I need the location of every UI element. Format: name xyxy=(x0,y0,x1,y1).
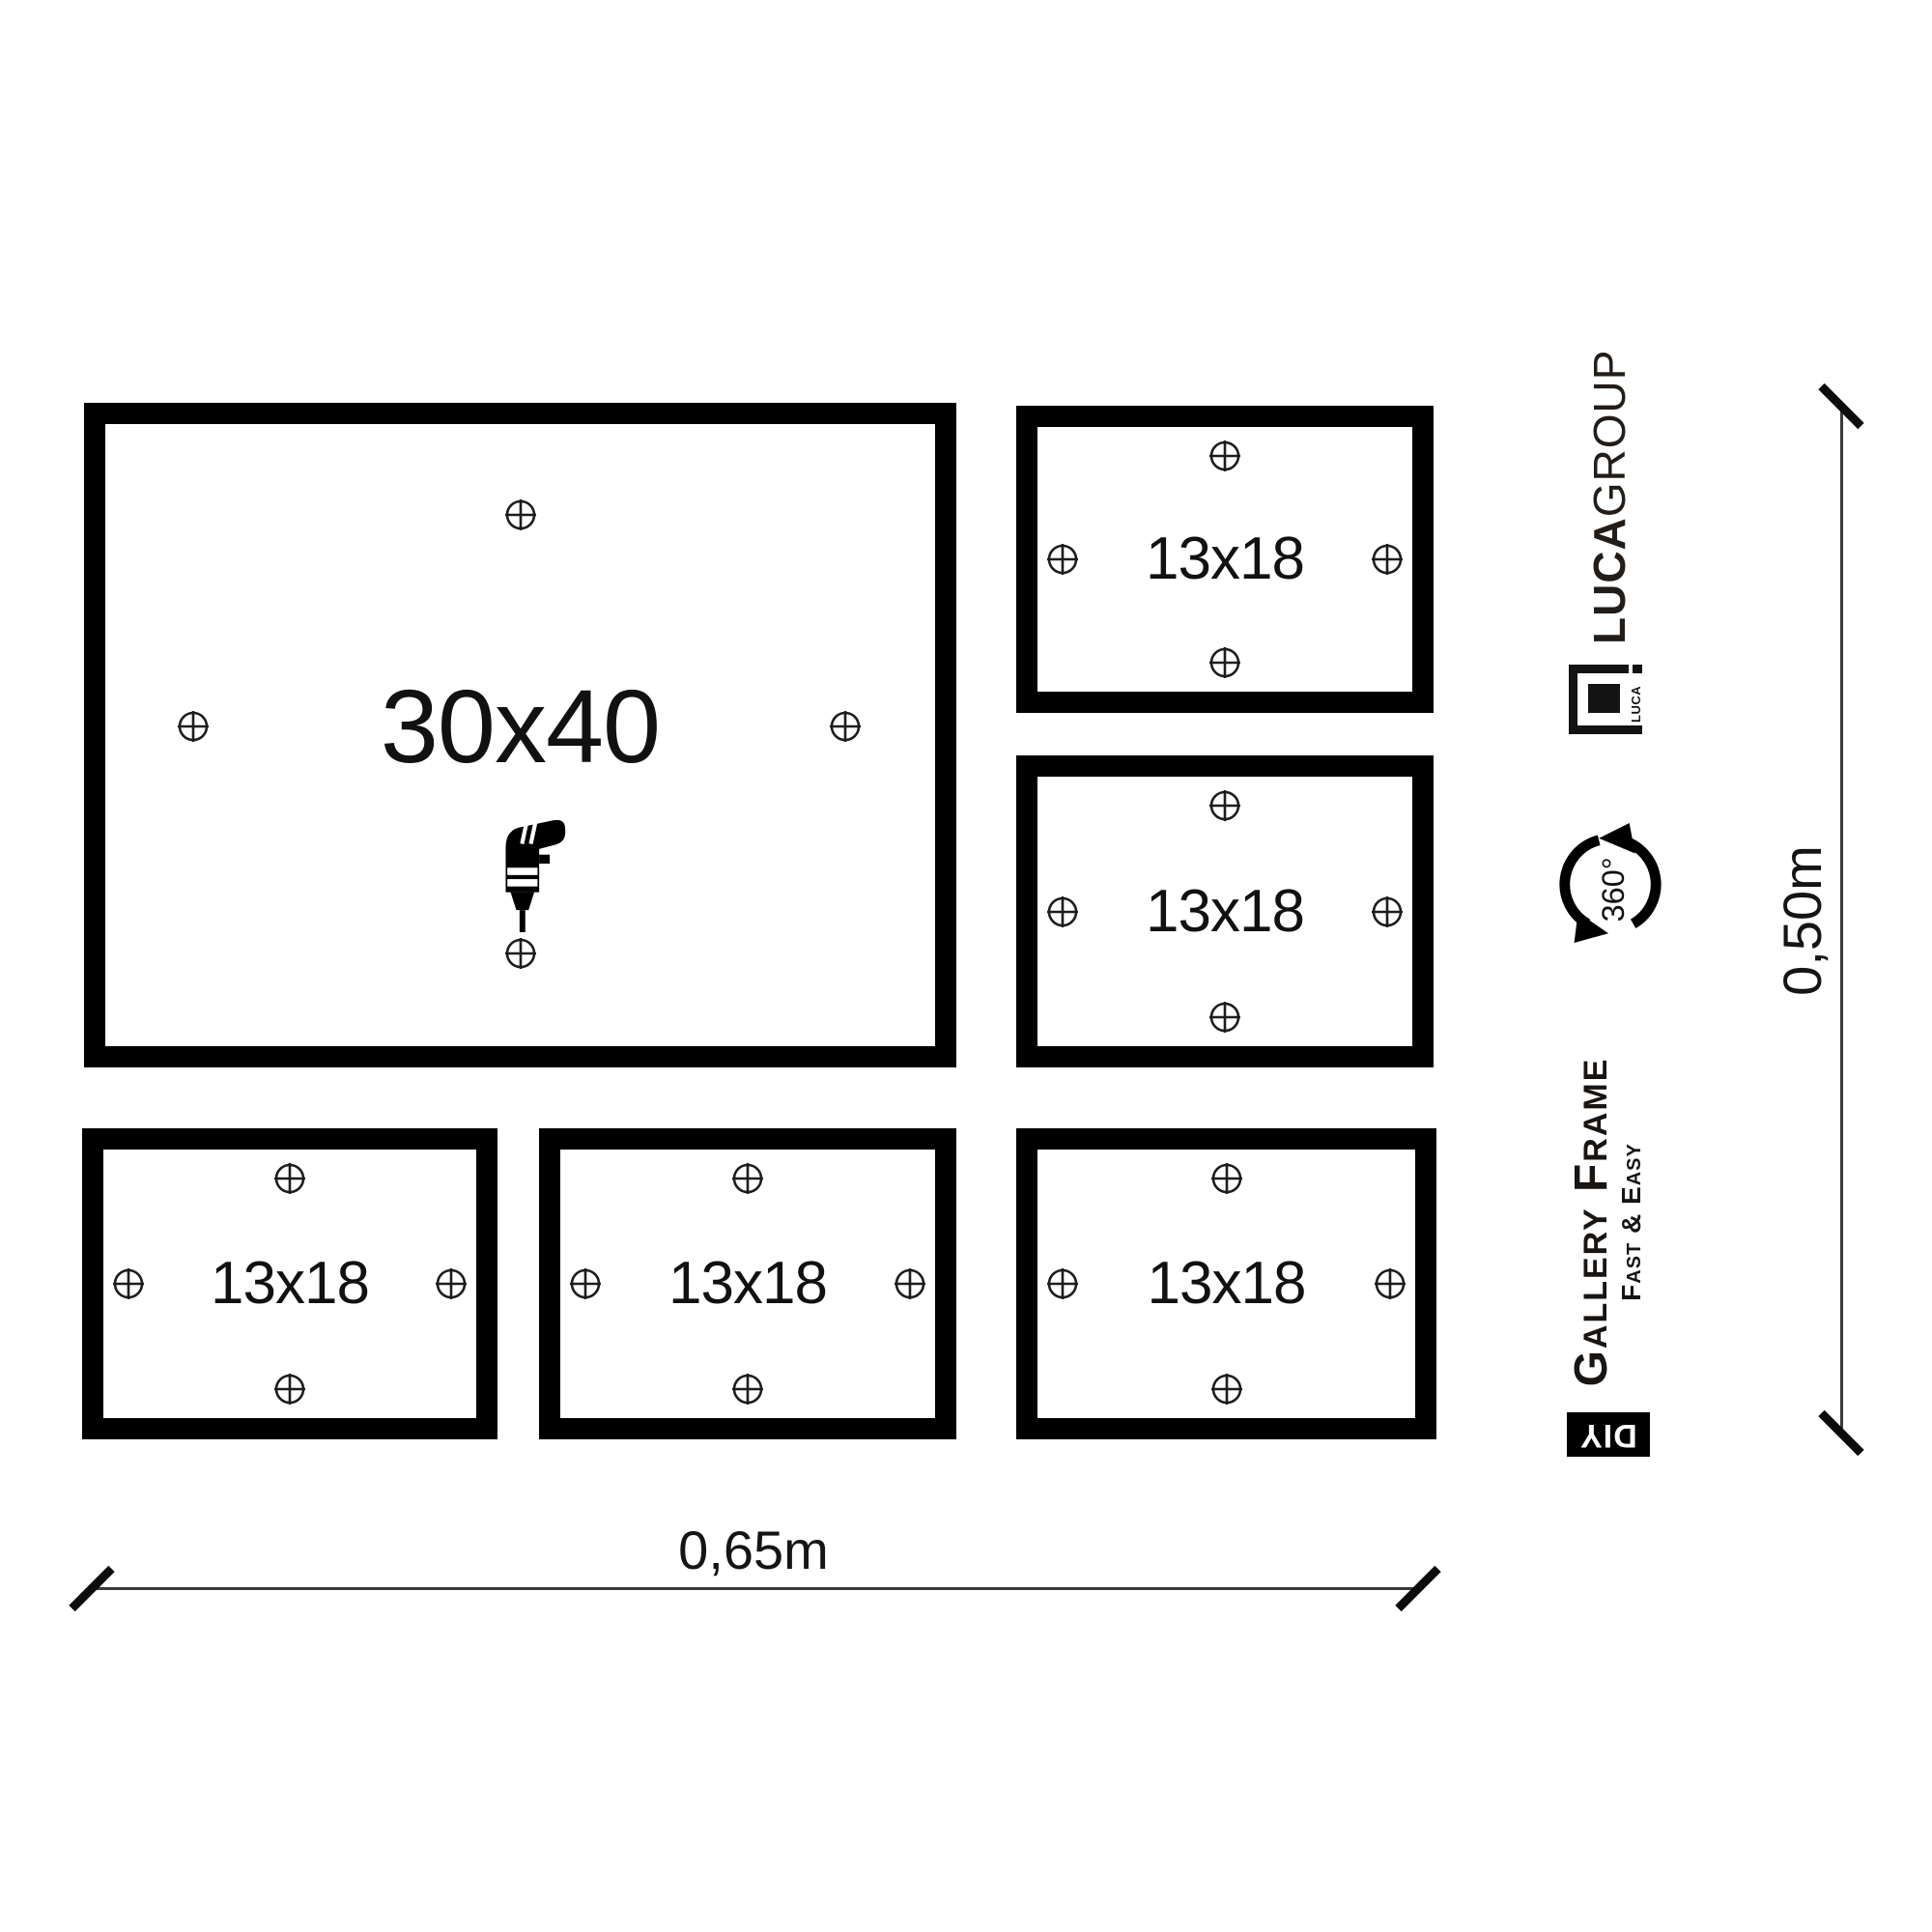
crosshair-mark-icon xyxy=(272,1161,307,1196)
frame-size-label: 30x40 xyxy=(105,674,935,779)
crosshair-mark-icon xyxy=(730,1372,765,1406)
brand-name-light: GROUP xyxy=(1584,350,1634,518)
vertical-dimension-line xyxy=(1840,406,1843,1433)
frame-13x18-bottom-center: 13x18 xyxy=(539,1128,956,1439)
crosshair-mark-icon xyxy=(1045,895,1080,929)
mount-mark-top xyxy=(730,1161,765,1196)
frame-size-label: 13x18 xyxy=(103,1254,476,1314)
frame-size-label: 13x18 xyxy=(1037,529,1412,589)
mount-mark-right xyxy=(434,1266,469,1301)
mount-mark-left xyxy=(1045,1266,1080,1301)
crosshair-mark-icon xyxy=(1370,895,1405,929)
mount-mark-left xyxy=(1045,542,1080,577)
logo-text: LUCA xyxy=(1629,686,1643,723)
product-name: Gallery Frame xyxy=(1568,1029,1616,1415)
frame-13x18-bottom-right: 13x18 xyxy=(1016,1128,1436,1439)
frame-hanging-template-sheet: 30x40 13x18 13x18 13x18 13x18 13x18 0,65… xyxy=(0,0,1932,1932)
crosshair-mark-icon xyxy=(503,497,538,532)
crosshair-mark-icon xyxy=(1045,542,1080,577)
mount-mark-bottom xyxy=(1207,1000,1242,1035)
rotation-360-icon: 360° xyxy=(1549,823,1671,945)
frame-13x18-middle-right: 13x18 xyxy=(1016,755,1434,1067)
crosshair-mark-icon xyxy=(730,1161,765,1196)
mount-mark-right xyxy=(828,709,863,744)
frame-13x18-top-right: 13x18 xyxy=(1016,406,1434,713)
drill-icon xyxy=(493,816,566,932)
mount-mark-bottom xyxy=(503,936,538,971)
mount-mark-top xyxy=(503,497,538,532)
crosshair-mark-icon xyxy=(503,936,538,971)
diy-badge-label: DIY xyxy=(1579,1416,1637,1454)
mount-mark-bottom xyxy=(1209,1372,1244,1406)
mount-mark-left xyxy=(111,1266,146,1301)
crosshair-mark-icon xyxy=(111,1266,146,1301)
diy-badge: DIY xyxy=(1567,1412,1650,1457)
product-title-block: Gallery Frame Fast & Easy xyxy=(1568,1029,1653,1415)
mount-mark-top xyxy=(272,1161,307,1196)
mount-mark-bottom xyxy=(730,1372,765,1406)
frame-13x18-bottom-left: 13x18 xyxy=(82,1128,497,1439)
height-dimension-label: 0,50m xyxy=(1776,838,1830,1003)
crosshair-mark-icon xyxy=(1209,1372,1244,1406)
brand-name: LUCAGROUP xyxy=(1585,384,1634,644)
crosshair-mark-icon xyxy=(272,1372,307,1406)
crosshair-mark-icon xyxy=(568,1266,603,1301)
mount-mark-right xyxy=(1370,542,1405,577)
rotation-badge-label: 360° xyxy=(1596,857,1631,922)
product-tagline: Fast & Easy xyxy=(1616,1029,1647,1415)
crosshair-mark-icon xyxy=(1209,1161,1244,1196)
luca-frame-logo-icon: LUCA xyxy=(1569,665,1646,734)
mount-mark-right xyxy=(893,1266,927,1301)
crosshair-mark-icon xyxy=(1045,1266,1080,1301)
mount-mark-top xyxy=(1207,788,1242,823)
mount-mark-left xyxy=(176,709,211,744)
crosshair-mark-icon xyxy=(1207,1000,1242,1035)
frame-size-label: 13x18 xyxy=(1037,882,1412,942)
crosshair-mark-icon xyxy=(1207,439,1242,473)
crosshair-mark-icon xyxy=(434,1266,469,1301)
mount-mark-top xyxy=(1209,1161,1244,1196)
frame-size-label: 13x18 xyxy=(1037,1254,1415,1314)
mount-mark-left xyxy=(568,1266,603,1301)
crosshair-mark-icon xyxy=(176,709,211,744)
crosshair-mark-icon xyxy=(1370,542,1405,577)
brand-name-bold: LUCA xyxy=(1584,517,1634,644)
mount-mark-right xyxy=(1370,895,1405,929)
frame-30x40: 30x40 xyxy=(84,403,956,1067)
mount-mark-top xyxy=(1207,439,1242,473)
mount-mark-bottom xyxy=(1207,645,1242,680)
horizontal-dimension-line xyxy=(92,1587,1418,1590)
width-dimension-label: 0,65m xyxy=(609,1523,898,1577)
mount-mark-left xyxy=(1045,895,1080,929)
crosshair-mark-icon xyxy=(1373,1266,1407,1301)
crosshair-mark-icon xyxy=(1207,788,1242,823)
crosshair-mark-icon xyxy=(1207,645,1242,680)
crosshair-mark-icon xyxy=(893,1266,927,1301)
mount-mark-right xyxy=(1373,1266,1407,1301)
crosshair-mark-icon xyxy=(828,709,863,744)
frame-size-label: 13x18 xyxy=(560,1254,935,1314)
mount-mark-bottom xyxy=(272,1372,307,1406)
